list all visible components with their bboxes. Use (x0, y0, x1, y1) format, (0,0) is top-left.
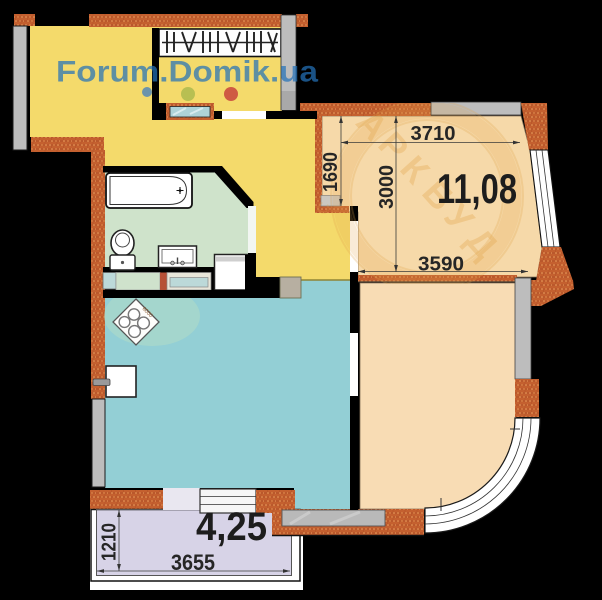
svg-text:3710: 3710 (411, 123, 456, 145)
svg-text:Forum.Domik.ua: Forum.Domik.ua (56, 56, 318, 89)
svg-text:3655: 3655 (171, 550, 215, 575)
svg-text:3000: 3000 (376, 165, 398, 209)
svg-text:1690: 1690 (320, 152, 342, 192)
svg-text:3590: 3590 (418, 254, 464, 276)
svg-text:4,25: 4,25 (196, 505, 267, 549)
svg-text:1210: 1210 (99, 523, 121, 561)
svg-text:11,08: 11,08 (437, 165, 517, 212)
